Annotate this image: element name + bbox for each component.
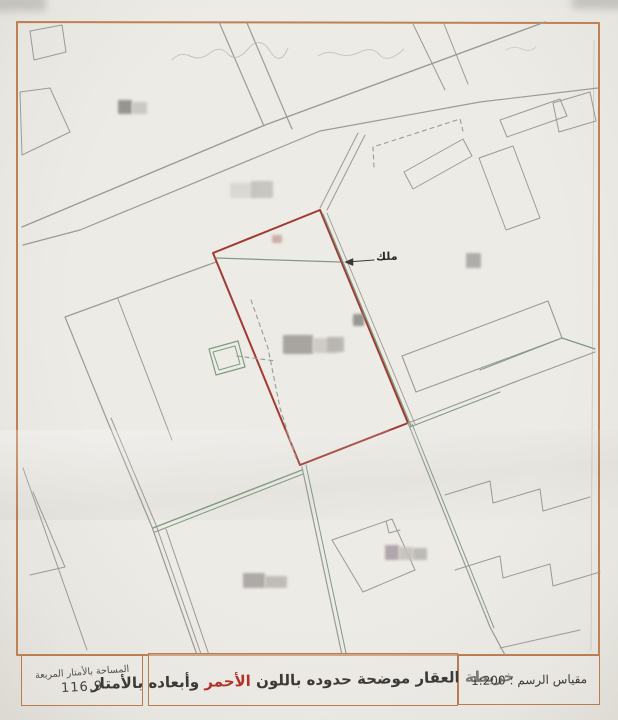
- scale-label: مقياس الرسم :: [509, 672, 587, 687]
- parcel-bottomleft-edge: [23, 468, 87, 650]
- boundary-green-south-2: [155, 474, 303, 532]
- handwriting-top-2: [318, 49, 404, 58]
- redaction-blur-n-2: [251, 181, 273, 198]
- map-title-text: خريطة العقار موضحة حدوده باللون الأحمر و…: [91, 667, 515, 692]
- lane-northeast-b: [444, 24, 468, 84]
- street-lower-line: [23, 88, 598, 245]
- redaction-blur-sw-1: [243, 573, 265, 588]
- boundary-southwest-1: [107, 420, 197, 655]
- slab-northeast-3: [553, 92, 596, 132]
- stepped-buildings-b: [455, 556, 600, 586]
- scale-text: مقياس الرسم : 1:200: [471, 672, 587, 688]
- boundary-east-1: [408, 352, 595, 423]
- slab-east-green-edge: [480, 338, 562, 370]
- map-svg: [0, 0, 618, 720]
- frame-inner-right: [591, 40, 594, 650]
- slab-northeast-2: [479, 146, 540, 230]
- dashed-parcel-north: [373, 119, 463, 167]
- redaction-mark-red-parcel: [272, 235, 282, 243]
- parcel-northwest-1: [30, 25, 66, 60]
- boundary-east-green-2: [562, 338, 595, 349]
- neighbor-north-a: [320, 133, 358, 208]
- boundary-below-red: [302, 467, 342, 655]
- boundary-green-south-1: [153, 470, 302, 528]
- parcel-northwest-2: [20, 88, 70, 155]
- redaction-blur-east: [466, 253, 481, 268]
- green-inner-top: [216, 258, 340, 262]
- parcel-west-inner-line: [118, 299, 172, 440]
- redaction-blur-center-1: [283, 335, 313, 354]
- scale-value: 1:200: [471, 673, 506, 688]
- boundary-east-green: [410, 392, 500, 427]
- slab-north: [404, 139, 472, 189]
- slab-northeast-1: [500, 99, 567, 137]
- red-parcel-green-east: [323, 214, 411, 426]
- title-red-word: الأحمر: [204, 671, 251, 690]
- boundary-below-red-green: [306, 465, 346, 653]
- green-annex-outer: [209, 341, 245, 375]
- parcel-bottomleft-a: [33, 492, 65, 567]
- lane-north-b: [247, 23, 292, 129]
- redaction-blur-south-2: [399, 547, 413, 560]
- handwriting-top-1: [172, 42, 288, 60]
- scanned-cadastral-map: ملك المساحة بالأمتار المربعة 116.9 خريطة…: [0, 0, 618, 720]
- redaction-blur-south-1: [385, 545, 399, 560]
- lane-north-a: [219, 22, 264, 126]
- redaction-blur-nw-light: [132, 102, 147, 114]
- redaction-blur-sw-2: [265, 576, 287, 588]
- lane-southwest: [166, 529, 209, 655]
- red-parcel-gray-east: [327, 213, 415, 424]
- redaction-blur-south-3: [413, 548, 427, 560]
- parcel-west-outline: [65, 262, 216, 420]
- street-upper-line: [22, 22, 545, 227]
- title-text-after: وأبعاده بالأمتار: [91, 672, 199, 692]
- slab-east: [402, 301, 562, 392]
- boundary-southwest-2: [111, 418, 201, 654]
- owner-label: ملك: [376, 250, 398, 264]
- redaction-wedge-center: [353, 314, 364, 326]
- neighbor-north-b: [327, 135, 365, 210]
- redaction-blur-center-3: [327, 337, 344, 352]
- green-annex-inner: [213, 346, 240, 370]
- scale-box: مقياس الرسم : 1:200: [458, 655, 600, 705]
- handwriting-top-3: [506, 47, 536, 51]
- lane-northeast-a: [413, 24, 445, 90]
- stepped-buildings-a: [445, 481, 590, 511]
- boundary-southeast-green: [412, 424, 494, 628]
- redaction-blur-nw-dark: [118, 100, 132, 114]
- boundary-bottom-right: [500, 630, 580, 648]
- map-title-box: خريطة العقار موضحة حدوده باللون الأحمر و…: [148, 653, 458, 706]
- dashed-inner-boundary: [251, 300, 296, 458]
